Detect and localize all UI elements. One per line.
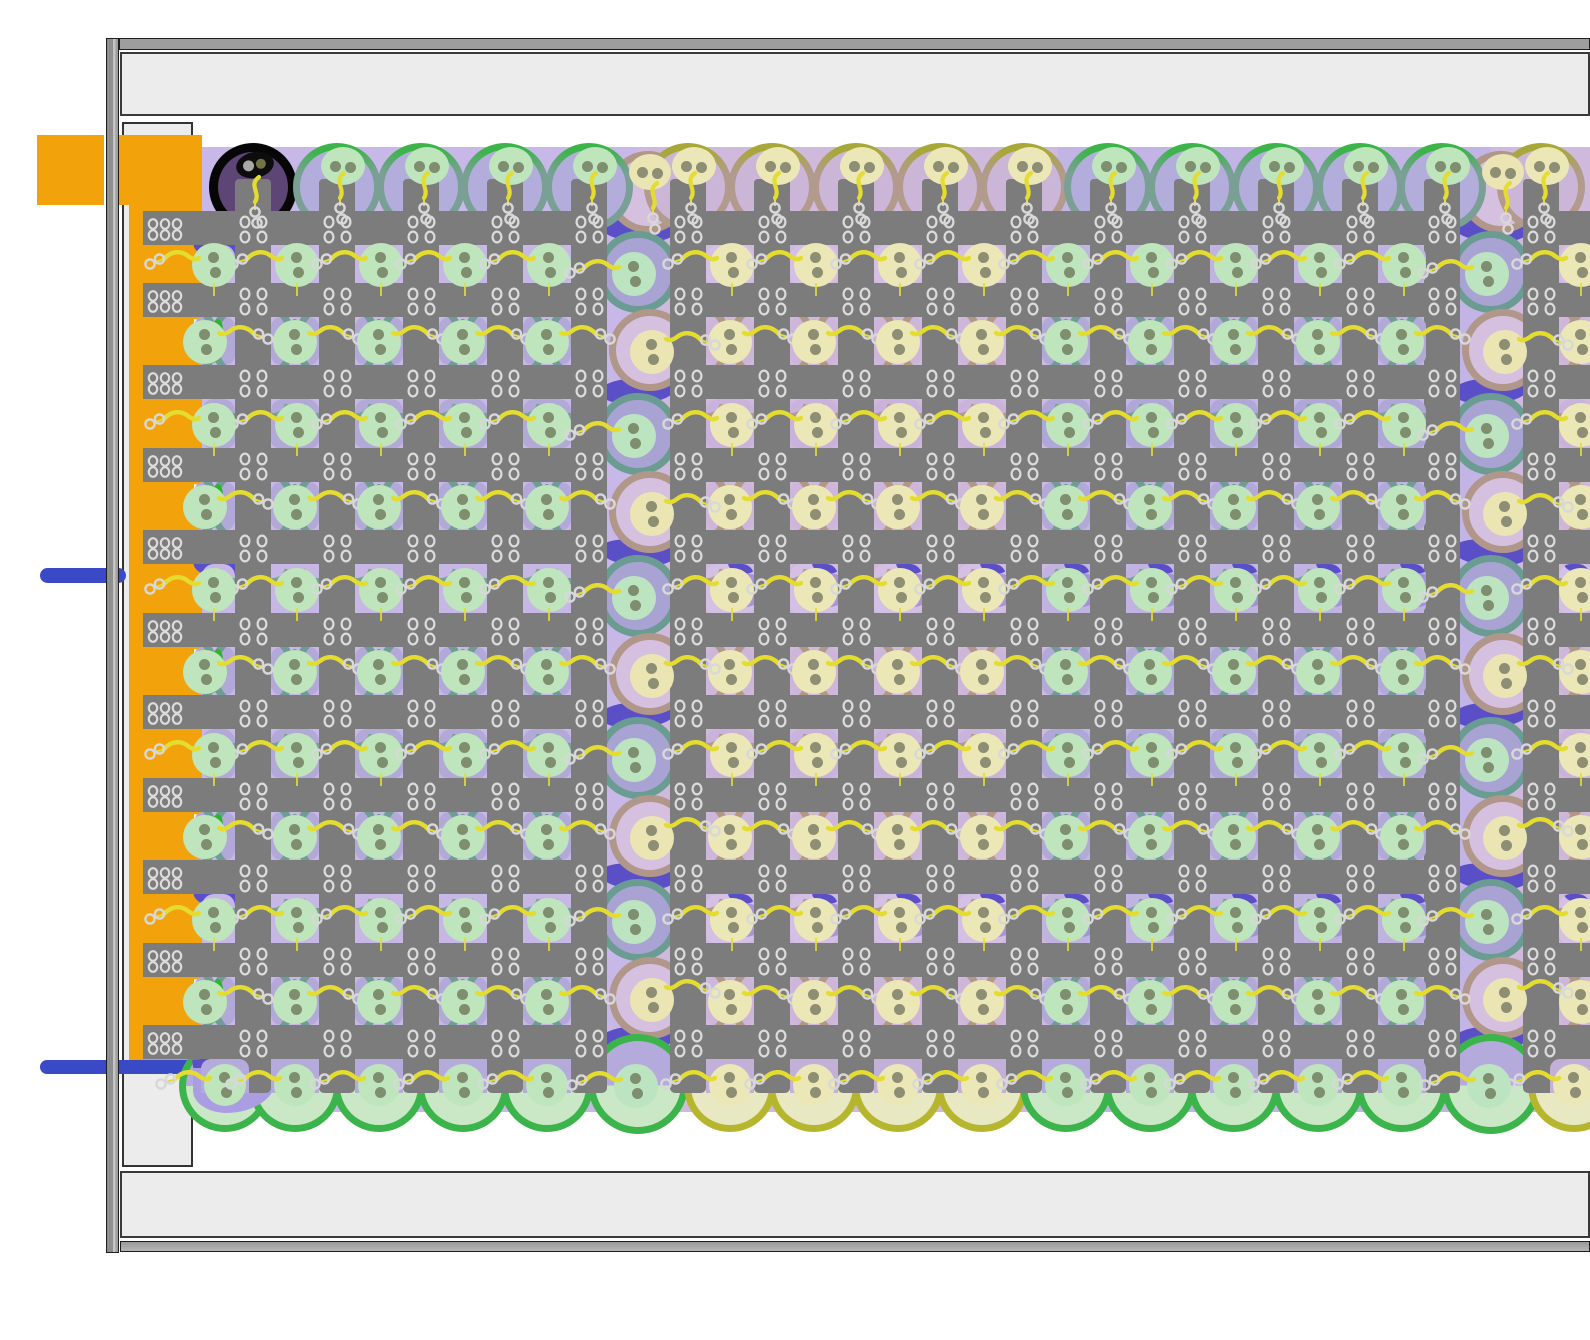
frame-layer [0, 0, 1590, 1340]
frame-bottom-bar [120, 1241, 1590, 1252]
frame-bottom-band [120, 1171, 1590, 1238]
frame-top-bar [119, 38, 1590, 50]
frame-left-bar [106, 38, 119, 1253]
simulation-viewport [0, 0, 1590, 1340]
frame-top-band [120, 52, 1590, 116]
